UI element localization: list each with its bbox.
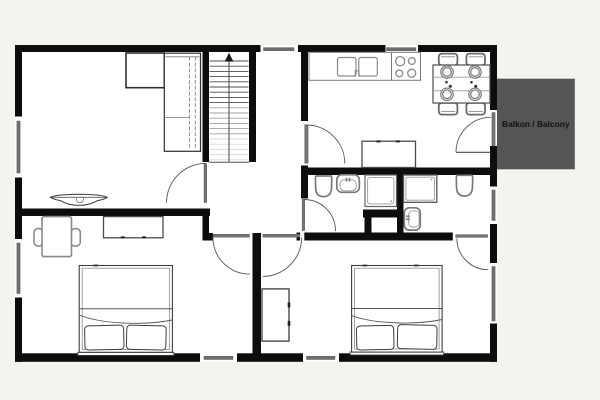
svg-text:Balkon / Balcony: Balkon / Balcony [502,119,570,129]
